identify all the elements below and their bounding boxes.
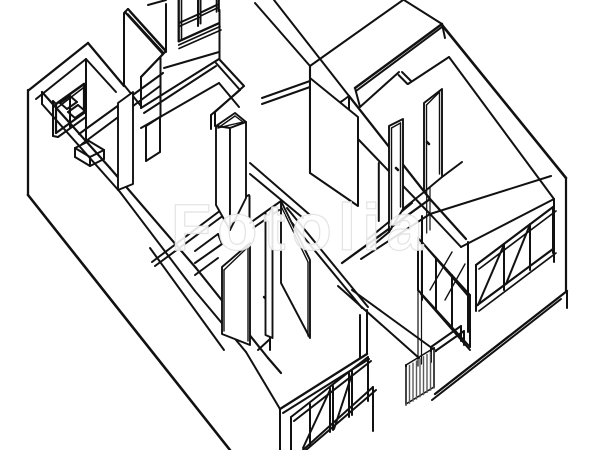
svg-text:Fotolia: Fotolia: [171, 190, 429, 264]
